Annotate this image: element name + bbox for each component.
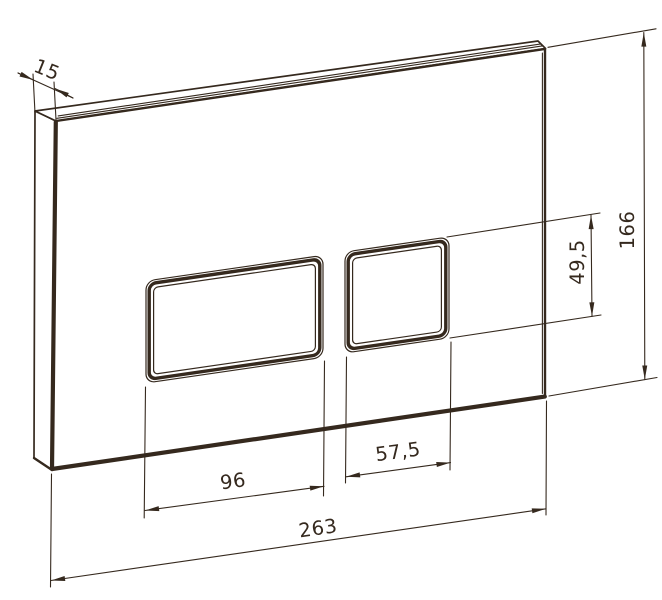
dimension-line <box>346 463 451 477</box>
dimension-arrow <box>55 89 73 98</box>
extension-line <box>546 401 547 515</box>
flush-plate <box>34 41 546 470</box>
flush-plate-technical-drawing: 15 166 49,5 96 57,5 263 <box>0 0 662 600</box>
extension-line <box>548 29 656 48</box>
dim-text-plate-height: 166 <box>616 211 639 250</box>
dim-text-large-button-width: 96 <box>219 468 248 494</box>
dim-text-button-cutout-height: 49,5 <box>566 239 589 284</box>
dimension-line <box>591 215 592 316</box>
extension-line <box>51 474 52 587</box>
drawing-canvas: 15 166 49,5 96 57,5 263 <box>0 0 662 600</box>
dimension-line <box>644 33 645 380</box>
dim-text-small-button-width: 57,5 <box>374 437 422 466</box>
extension-line <box>549 378 657 397</box>
dimension-plate-height <box>548 29 657 396</box>
dim-text-plate-width: 263 <box>297 514 339 542</box>
